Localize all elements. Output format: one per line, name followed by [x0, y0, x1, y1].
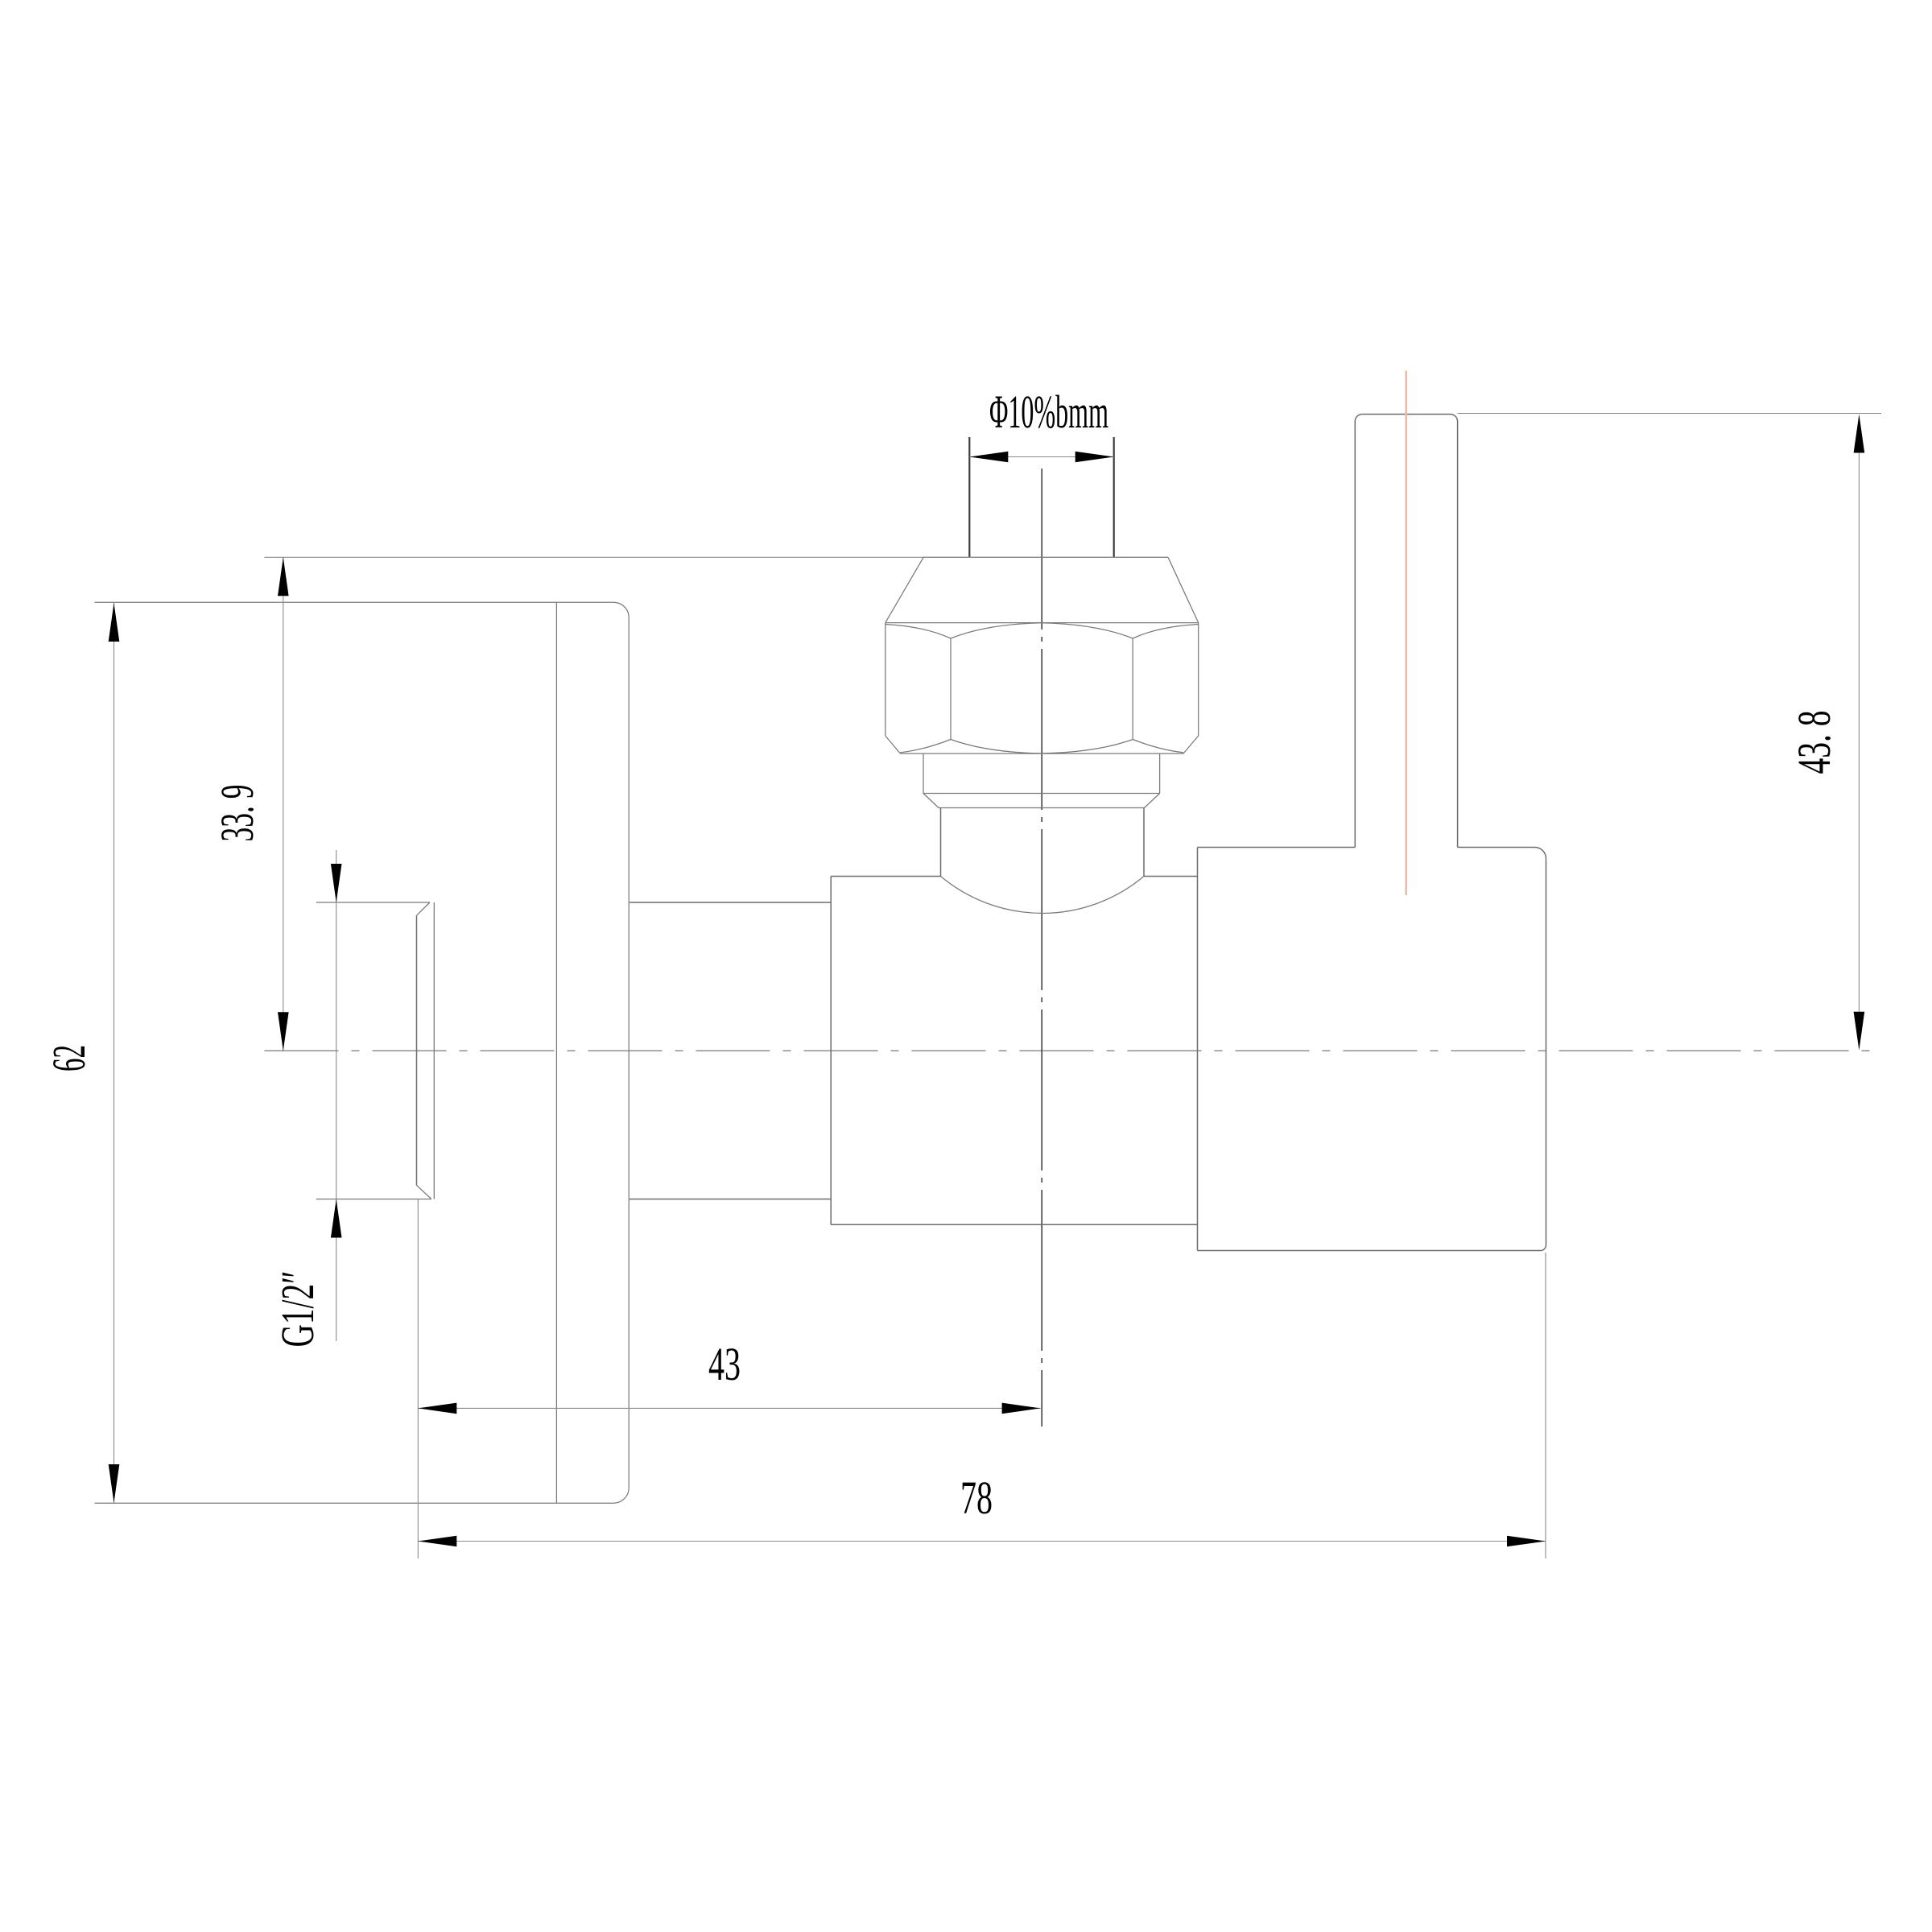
svg-text:33. 9: 33. 9	[211, 785, 263, 842]
svg-text:43: 43	[708, 1338, 741, 1390]
svg-text:43. 8: 43. 8	[1788, 711, 1840, 774]
svg-text:Φ10%bmm: Φ10%bmm	[989, 386, 1108, 438]
svg-text:G1/2″: G1/2″	[271, 1271, 324, 1348]
svg-text:62: 62	[43, 1045, 95, 1071]
svg-text:78: 78	[960, 1472, 993, 1524]
